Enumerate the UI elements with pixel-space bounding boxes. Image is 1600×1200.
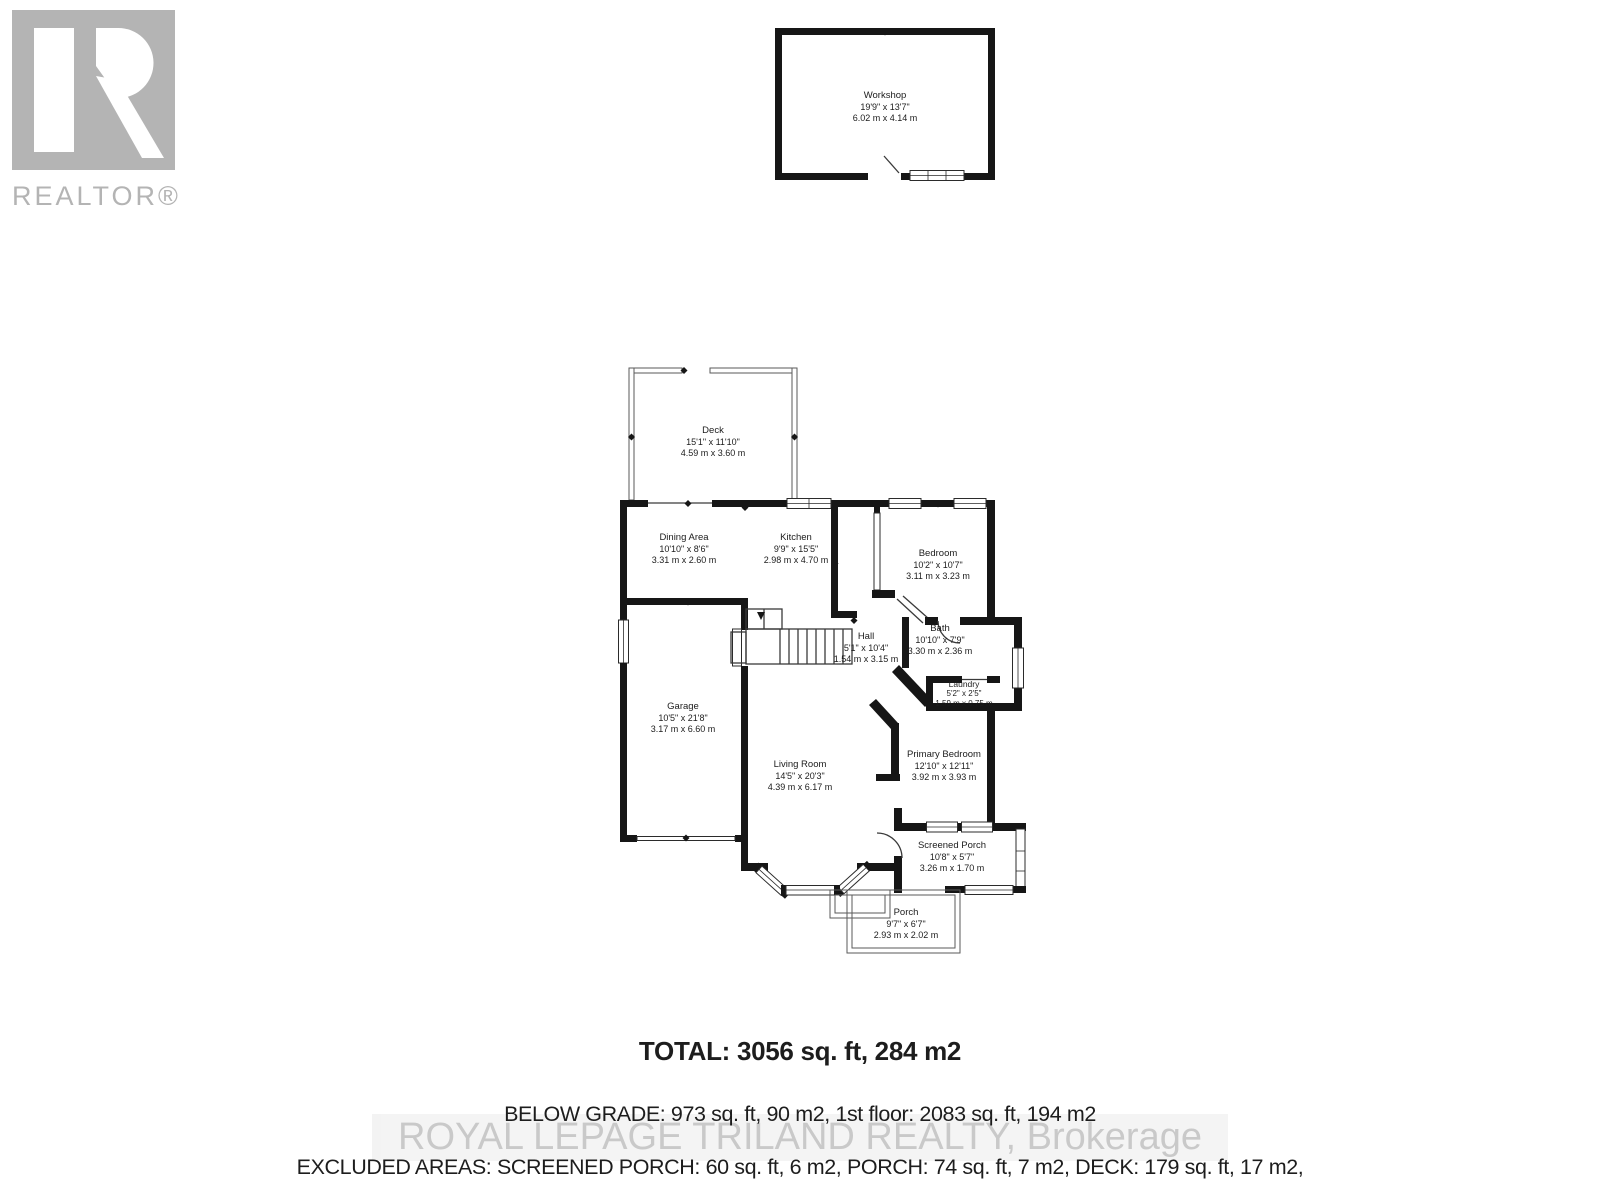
room-label-screened-porch: Screened Porch 10'8" x 5'7" 3.26 m x 1.7…: [918, 840, 986, 875]
room-name: Bath: [908, 623, 973, 635]
room-dims-imperial: 10'5" x 21'8": [651, 712, 716, 724]
room-dims-metric: 3.26 m x 1.70 m: [918, 863, 986, 875]
room-label-workshop: Workshop 19'9" x 13'7" 6.02 m x 4.14 m: [853, 90, 918, 125]
room-dims-imperial: 19'9" x 13'7": [853, 101, 918, 113]
room-dims-imperial: 10'10" x 7'9": [908, 634, 973, 646]
room-dims-metric: 3.30 m x 2.36 m: [908, 646, 973, 658]
room-label-primary-bedroom: Primary Bedroom 12'10" x 12'11" 3.92 m x…: [907, 749, 981, 784]
room-label-garage: Garage 10'5" x 21'8" 3.17 m x 6.60 m: [651, 701, 716, 736]
room-dims-metric: 2.98 m x 4.70 m: [764, 555, 829, 567]
room-name: Living Room: [768, 759, 833, 771]
room-name: Screened Porch: [918, 840, 986, 852]
room-dims-imperial: 5'1" x 10'4": [834, 642, 899, 654]
room-dims-imperial: 9'9" x 15'5": [764, 543, 829, 555]
room-label-deck: Deck 15'1" x 11'10" 4.59 m x 3.60 m: [681, 425, 746, 460]
room-name: Workshop: [853, 90, 918, 102]
room-label-bath: Bath 10'10" x 7'9" 3.30 m x 2.36 m: [908, 623, 973, 658]
room-dims-metric: 6.02 m x 4.14 m: [853, 113, 918, 125]
room-dims-metric: 4.39 m x 6.17 m: [768, 782, 833, 794]
room-name: Porch: [874, 907, 939, 919]
room-label-porch: Porch 9'7" x 6'7" 2.93 m x 2.02 m: [874, 907, 939, 942]
total-area-line: TOTAL: 3056 sq. ft, 284 m2: [0, 1036, 1600, 1067]
room-name: Bedroom: [906, 548, 970, 560]
room-name: Hall: [834, 631, 899, 643]
room-dims-metric: 3.31 m x 2.60 m: [652, 555, 717, 567]
room-dims-imperial: 9'7" x 6'7": [874, 918, 939, 930]
room-name: Garage: [651, 701, 716, 713]
room-name: Laundry: [935, 679, 992, 689]
room-dims-metric: 1.59 m x 0.75 m: [935, 699, 992, 709]
floor-plan-page: REALTOR®: [0, 0, 1600, 1200]
room-name: Dining Area: [652, 532, 717, 544]
room-dims-imperial: 12'10" x 12'11": [907, 760, 981, 772]
room-label-living-room: Living Room 14'5" x 20'3" 4.39 m x 6.17 …: [768, 759, 833, 794]
below-grade-line: BELOW GRADE: 973 sq. ft, 90 m2, 1st floo…: [0, 1102, 1600, 1127]
excluded-areas-line-1: EXCLUDED AREAS: SCREENED PORCH: 60 sq. f…: [0, 1155, 1600, 1180]
room-label-dining-area: Dining Area 10'10" x 8'6" 3.31 m x 2.60 …: [652, 532, 717, 567]
room-dims-imperial: 15'1" x 11'10": [681, 436, 746, 448]
room-dims-imperial: 10'8" x 5'7": [918, 851, 986, 863]
room-dims-imperial: 10'2" x 10'7": [906, 559, 970, 571]
room-dims-metric: 2.93 m x 2.02 m: [874, 930, 939, 942]
room-dims-metric: 1.54 m x 3.15 m: [834, 654, 899, 666]
room-dims-imperial: 14'5" x 20'3": [768, 770, 833, 782]
room-name: Primary Bedroom: [907, 749, 981, 761]
room-dims-metric: 4.59 m x 3.60 m: [681, 448, 746, 460]
room-dims-metric: 3.11 m x 3.23 m: [906, 571, 970, 583]
room-name: Deck: [681, 425, 746, 437]
room-label-kitchen: Kitchen 9'9" x 15'5" 2.98 m x 4.70 m: [764, 532, 829, 567]
room-dims-metric: 3.17 m x 6.60 m: [651, 724, 716, 736]
room-label-laundry: Laundry 5'2" x 2'5" 1.59 m x 0.75 m: [935, 679, 992, 709]
floor-plan-drawing: [0, 0, 1600, 1200]
room-name: Kitchen: [764, 532, 829, 544]
room-label-hall: Hall 5'1" x 10'4" 1.54 m x 3.15 m: [834, 631, 899, 666]
room-dims-imperial: 5'2" x 2'5": [935, 689, 992, 699]
room-dims-metric: 3.92 m x 3.93 m: [907, 772, 981, 784]
room-label-bedroom: Bedroom 10'2" x 10'7" 3.11 m x 3.23 m: [906, 548, 970, 583]
room-dims-imperial: 10'10" x 8'6": [652, 543, 717, 555]
